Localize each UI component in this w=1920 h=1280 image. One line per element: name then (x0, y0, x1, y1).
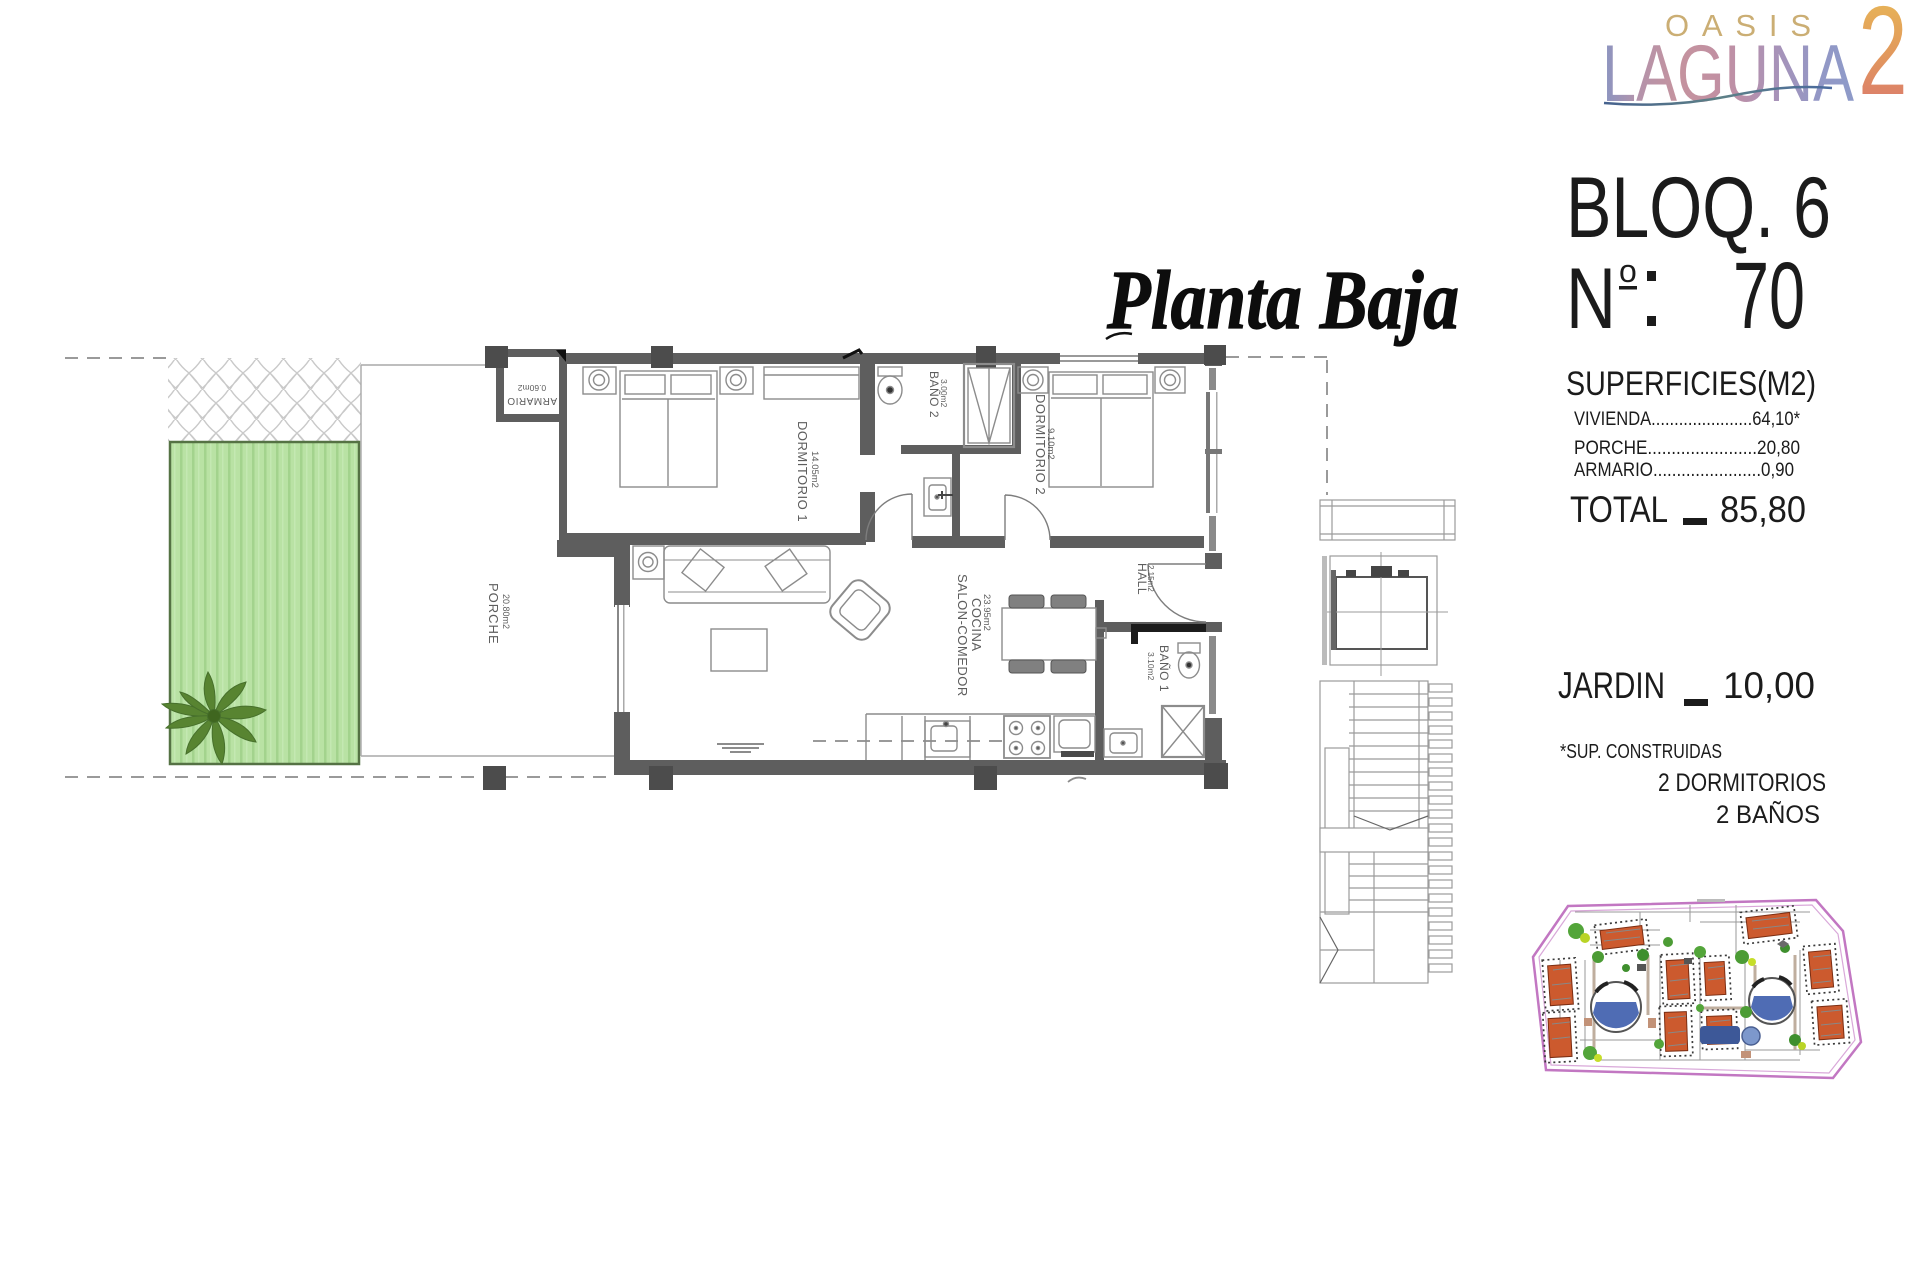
svg-text:2 DORMITORIOS: 2 DORMITORIOS (1658, 769, 1826, 797)
svg-text:SUPERFICIES(M2): SUPERFICIES(M2) (1566, 365, 1816, 403)
svg-text:85,80: 85,80 (1720, 489, 1806, 530)
svg-text:10,00: 10,00 (1723, 665, 1815, 706)
svg-text:14.05m2: 14.05m2 (809, 451, 820, 488)
svg-text:BLOQ. 6: BLOQ. 6 (1566, 160, 1831, 256)
svg-text:BAÑO 2: BAÑO 2 (927, 371, 941, 418)
svg-text:ARMARIO.......................: ARMARIO.......................0,90 (1574, 460, 1794, 481)
svg-text:3.10m2: 3.10m2 (1146, 652, 1156, 681)
svg-text:DORMITORIO 1: DORMITORIO 1 (795, 421, 810, 522)
svg-text:ARMARIO: ARMARIO (507, 395, 557, 406)
svg-text:2.15m2: 2.15m2 (1146, 565, 1155, 592)
svg-text:o: o (1619, 253, 1637, 289)
svg-text:N: N (1566, 251, 1616, 347)
svg-text:23.95m2: 23.95m2 (981, 594, 992, 631)
svg-text:Planta Baja: Planta Baja (1106, 254, 1459, 347)
svg-text:JARDIN: JARDIN (1558, 665, 1665, 706)
svg-text:BAÑO 1: BAÑO 1 (1157, 645, 1171, 692)
svg-text:2: 2 (1858, 0, 1908, 122)
svg-text:SALON-COMEDOR: SALON-COMEDOR (955, 574, 970, 697)
svg-text:TOTAL: TOTAL (1570, 489, 1668, 530)
svg-text:9.10m2: 9.10m2 (1045, 428, 1056, 460)
svg-text:3.00m2: 3.00m2 (939, 379, 949, 408)
svg-text:*SUP. CONSTRUIDAS: *SUP. CONSTRUIDAS (1560, 741, 1722, 763)
svg-text:2 BAÑOS: 2 BAÑOS (1716, 800, 1820, 829)
svg-text:PORCHE.......................2: PORCHE.......................20,80 (1574, 438, 1800, 459)
svg-text:20.80m2: 20.80m2 (501, 594, 511, 629)
svg-text:PORCHE: PORCHE (486, 583, 501, 645)
svg-text:0.60m2: 0.60m2 (518, 383, 547, 393)
svg-text:VIVIENDA......................: VIVIENDA......................64,10* (1574, 409, 1801, 430)
svg-text:70: 70 (1733, 243, 1805, 349)
